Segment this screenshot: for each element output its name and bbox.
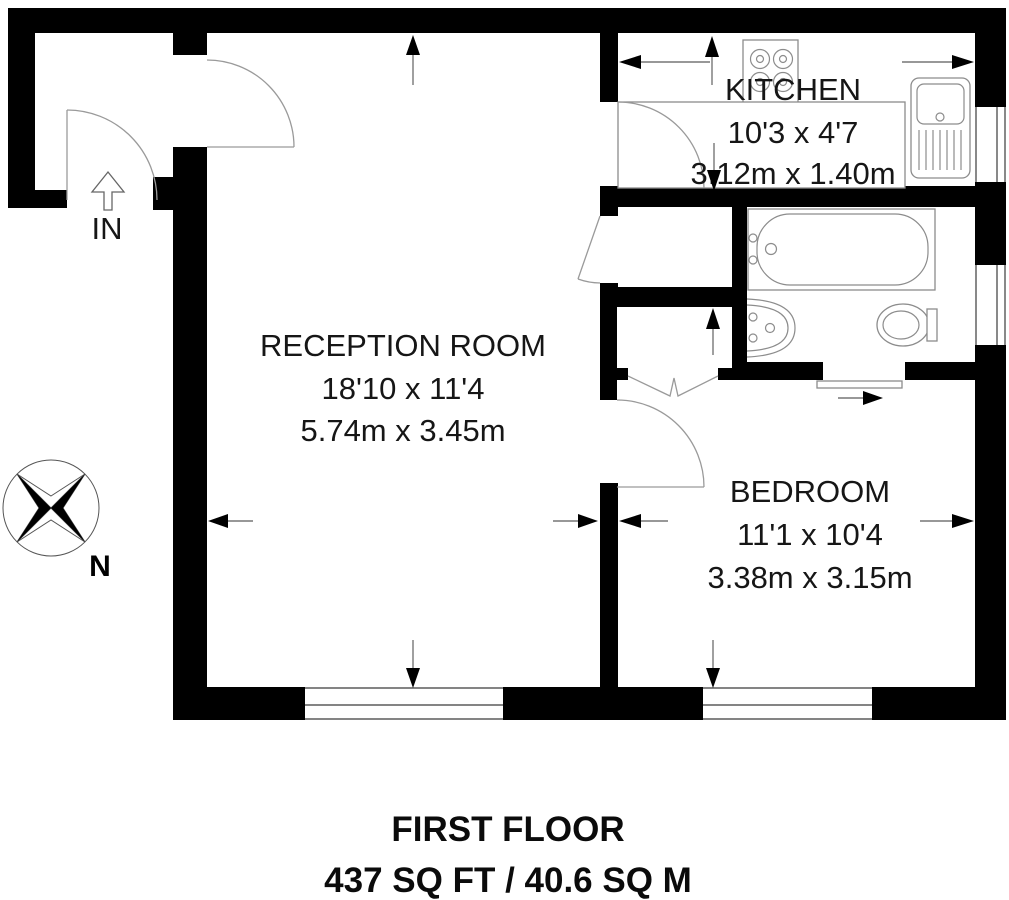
dimension-arrow-bedroom-down	[706, 640, 720, 688]
wall-right-1	[975, 33, 1006, 107]
dimension-arrow-bedroom-left	[619, 514, 668, 528]
window-glass	[305, 686, 503, 720]
arrow-head	[863, 391, 883, 405]
basin-inner	[747, 305, 788, 351]
arrow-head	[619, 55, 641, 69]
wall-bedroom-left	[600, 483, 618, 687]
room-size-metric: 3.12m x 1.40m	[690, 156, 895, 191]
wall-bottom-2	[503, 687, 703, 720]
wall-bathroom-left	[732, 205, 747, 380]
arrow-head	[406, 668, 420, 688]
wall-porch-bottom-stub	[8, 190, 67, 208]
room-size-imperial: 10'3 x 4'7	[728, 115, 859, 150]
basin-tap	[749, 313, 757, 321]
window-glass	[974, 265, 1007, 345]
entrance-label: IN	[92, 211, 123, 246]
dimension-arrow-reception-right	[553, 514, 598, 528]
room-size-metric: 3.38m x 3.15m	[707, 560, 912, 595]
toilet-icon	[877, 304, 937, 346]
room-size-imperial: 18'10 x 11'4	[322, 371, 485, 406]
closet-bifold-door	[628, 376, 718, 396]
wall-left	[173, 147, 207, 687]
label-bedroom: BEDROOM 11'1 x 10'4 3.38m x 3.15m	[707, 474, 912, 595]
room-size-metric: 5.74m x 3.45m	[300, 413, 505, 448]
room-size-imperial: 11'1 x 10'4	[737, 517, 883, 552]
wall-right-2	[975, 182, 1006, 265]
window-bathroom	[974, 265, 1007, 345]
room-name: RECEPTION ROOM	[260, 328, 546, 363]
toilet-cistern	[927, 309, 937, 341]
arrow-head	[406, 35, 420, 55]
window-kitchen	[974, 107, 1007, 182]
compass-north-label: N	[89, 550, 111, 583]
entrance-arrow-icon	[92, 172, 124, 210]
arrow-head	[578, 514, 598, 528]
arrow-head	[705, 36, 719, 57]
label-reception: RECEPTION ROOM 18'10 x 11'4 5.74m x 3.45…	[260, 328, 546, 448]
window-glass	[974, 107, 1007, 182]
wall-right-3	[975, 345, 1006, 720]
toilet-bowl	[877, 304, 929, 346]
wall-closet-divider	[600, 287, 747, 307]
wall-porch-left	[8, 33, 35, 208]
door-swing-arc	[207, 60, 294, 147]
basin-drain	[766, 324, 775, 333]
dimension-arrow-bedroom-up	[706, 308, 720, 355]
kitchen-sink-icon	[911, 78, 970, 178]
bathroom-sink-icon	[747, 299, 795, 357]
dimension-arrow-kitchen-right	[902, 55, 974, 69]
dimension-arrow-reception-up	[406, 35, 420, 85]
wall-hall-lower	[600, 307, 617, 400]
window-glass	[703, 686, 872, 720]
footer: FIRST FLOOR 437 SQ FT / 40.6 SQ M	[324, 810, 692, 900]
dimension-arrow-reception-left	[208, 514, 253, 528]
arrow-head	[952, 55, 974, 69]
door-swing-arc	[617, 400, 704, 487]
footer-area-text: 437 SQ FT / 40.6 SQ M	[324, 861, 692, 900]
footer-floor-title: FIRST FLOOR	[391, 810, 624, 849]
dimension-arrow-reception-down	[406, 640, 420, 688]
door-leaf	[578, 216, 600, 279]
arrow-head	[706, 308, 720, 329]
compass-rose: N	[3, 460, 111, 583]
bathroom-fixtures	[747, 209, 937, 388]
wall-bottom-1	[173, 687, 305, 720]
wall-top	[8, 8, 1006, 33]
arrow-head	[952, 514, 974, 528]
wall-closet-stub-left	[600, 368, 628, 380]
cupboard-door	[578, 216, 600, 283]
wall-kitchen-left-stub	[600, 33, 618, 102]
sliding-door-leaf	[817, 381, 902, 388]
room-name: KITCHEN	[725, 72, 861, 107]
window-bedroom	[703, 686, 872, 720]
basin-tap	[749, 334, 757, 342]
dimension-arrow-bedroom-right	[920, 514, 974, 528]
dimension-arrow-kitchen-left	[619, 55, 710, 69]
floor-plan-svg: IN N RECEPTION ROOM 18'10 x 11'4 5.74m x…	[0, 0, 1009, 900]
wall-bathroom-bottom-right	[905, 362, 975, 380]
arrow-head	[706, 668, 720, 688]
wall-bathroom-bottom-left	[732, 362, 823, 380]
wall-hall-stub-a	[600, 186, 618, 216]
wall-left-pillar	[173, 33, 207, 55]
dimension-arrow-kitchen-up	[705, 36, 719, 85]
bedroom-door	[617, 400, 704, 487]
arrow-head	[208, 514, 228, 528]
window-reception	[305, 686, 503, 720]
sliding-door-direction-arrow	[838, 391, 883, 405]
hall-to-reception-door	[207, 60, 294, 147]
bathtub-icon	[748, 209, 935, 290]
room-name: BEDROOM	[730, 474, 890, 509]
floor-plan-page: IN N RECEPTION ROOM 18'10 x 11'4 5.74m x…	[0, 0, 1009, 900]
bifold-leaves	[628, 376, 718, 396]
entrance-marker: IN	[92, 172, 125, 246]
door-swing-arc	[578, 279, 600, 283]
arrow-head	[619, 514, 641, 528]
